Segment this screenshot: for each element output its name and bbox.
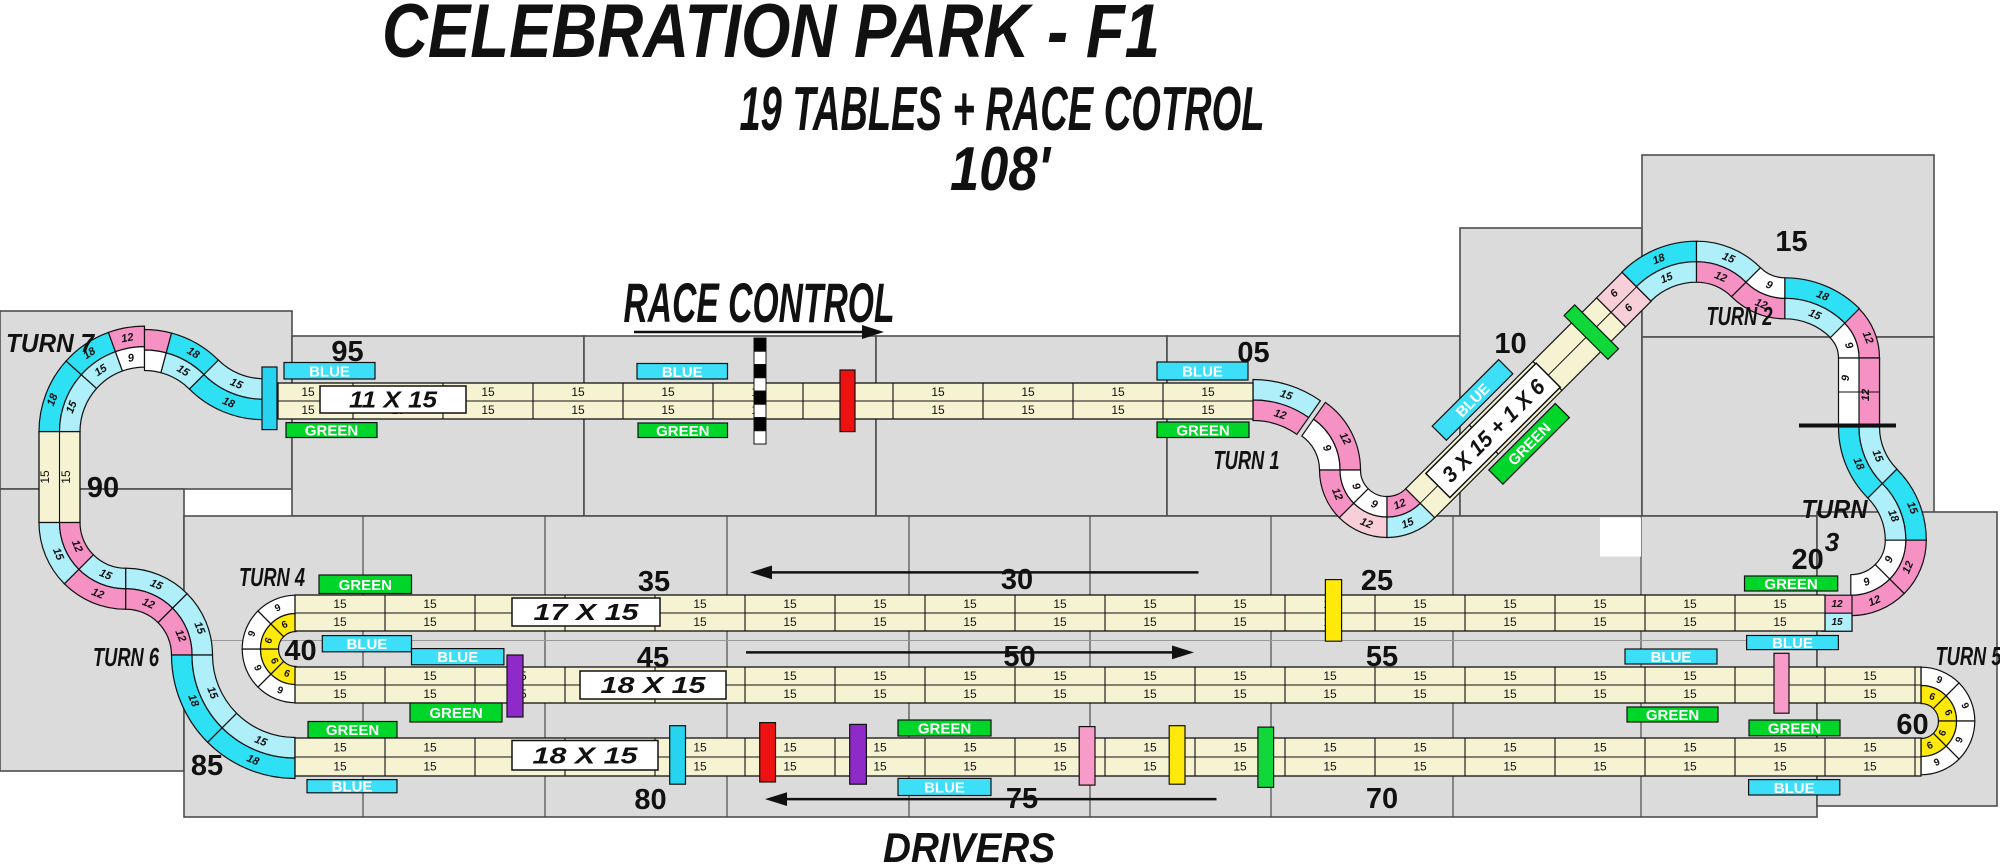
svg-text:15: 15 xyxy=(1503,741,1517,755)
svg-text:12: 12 xyxy=(1860,389,1872,401)
svg-text:15: 15 xyxy=(1413,597,1427,611)
svg-text:15: 15 xyxy=(1831,617,1843,628)
svg-text:15: 15 xyxy=(301,403,315,417)
svg-text:50: 50 xyxy=(1003,641,1035,673)
svg-text:15: 15 xyxy=(1683,615,1697,629)
svg-text:15: 15 xyxy=(693,760,707,774)
svg-text:25: 25 xyxy=(1361,565,1393,597)
svg-text:10: 10 xyxy=(1494,328,1526,360)
svg-text:TURN 6: TURN 6 xyxy=(93,642,159,672)
svg-text:BLUE: BLUE xyxy=(924,779,965,796)
svg-text:15: 15 xyxy=(423,597,437,611)
svg-text:TURN 1: TURN 1 xyxy=(1214,445,1280,475)
svg-text:90: 90 xyxy=(87,472,119,504)
svg-text:15: 15 xyxy=(1503,669,1517,683)
svg-text:15: 15 xyxy=(963,615,977,629)
svg-text:20: 20 xyxy=(1791,544,1823,576)
svg-text:15: 15 xyxy=(1863,760,1877,774)
svg-text:GREEN: GREEN xyxy=(305,423,358,440)
svg-text:45: 45 xyxy=(637,642,669,674)
svg-text:05: 05 xyxy=(1237,337,1269,369)
svg-text:15: 15 xyxy=(1053,615,1067,629)
svg-text:15: 15 xyxy=(571,403,585,417)
svg-text:TURN 5: TURN 5 xyxy=(1936,641,2000,671)
svg-text:15: 15 xyxy=(1143,760,1157,774)
svg-text:15: 15 xyxy=(333,741,347,755)
svg-text:11 X 15: 11 X 15 xyxy=(349,387,438,413)
svg-text:95: 95 xyxy=(331,336,363,368)
svg-text:15: 15 xyxy=(423,741,437,755)
svg-text:15: 15 xyxy=(333,760,347,774)
svg-text:TURN 2: TURN 2 xyxy=(1707,301,1773,331)
svg-text:15: 15 xyxy=(333,687,347,701)
svg-text:BLUE: BLUE xyxy=(346,636,387,653)
svg-text:15: 15 xyxy=(963,741,977,755)
svg-text:15: 15 xyxy=(481,385,495,399)
svg-text:15: 15 xyxy=(1143,597,1157,611)
svg-text:15: 15 xyxy=(1413,669,1427,683)
svg-text:15: 15 xyxy=(301,385,315,399)
svg-text:15: 15 xyxy=(1233,687,1247,701)
svg-text:15: 15 xyxy=(873,669,887,683)
svg-text:15: 15 xyxy=(963,597,977,611)
svg-text:GREEN: GREEN xyxy=(1764,576,1817,593)
svg-text:15: 15 xyxy=(1053,741,1067,755)
svg-text:15: 15 xyxy=(693,615,707,629)
svg-text:15: 15 xyxy=(963,760,977,774)
svg-text:15: 15 xyxy=(1111,385,1125,399)
svg-text:DRIVERS: DRIVERS xyxy=(883,824,1055,864)
svg-text:15: 15 xyxy=(1143,669,1157,683)
svg-text:BLUE: BLUE xyxy=(437,649,478,666)
svg-text:15: 15 xyxy=(481,403,495,417)
svg-text:TURN 4: TURN 4 xyxy=(239,562,305,592)
svg-text:15: 15 xyxy=(1775,226,1807,258)
svg-text:15: 15 xyxy=(571,385,585,399)
svg-text:15: 15 xyxy=(1323,760,1337,774)
svg-text:15: 15 xyxy=(1323,669,1337,683)
svg-text:15: 15 xyxy=(1233,615,1247,629)
svg-text:30: 30 xyxy=(1001,564,1033,596)
svg-text:GREEN: GREEN xyxy=(1646,707,1699,724)
svg-text:15: 15 xyxy=(1021,403,1035,417)
svg-text:15: 15 xyxy=(1773,741,1787,755)
svg-text:GREEN: GREEN xyxy=(918,721,971,738)
svg-text:15: 15 xyxy=(963,687,977,701)
svg-text:15: 15 xyxy=(693,597,707,611)
svg-text:15: 15 xyxy=(1053,760,1067,774)
svg-text:15: 15 xyxy=(333,597,347,611)
svg-text:15: 15 xyxy=(1323,687,1337,701)
svg-text:15: 15 xyxy=(873,597,887,611)
svg-text:TURN 7: TURN 7 xyxy=(6,328,95,358)
svg-text:BLUE: BLUE xyxy=(1182,364,1223,381)
svg-text:18 X 15: 18 X 15 xyxy=(533,742,640,768)
svg-text:15: 15 xyxy=(1413,760,1427,774)
svg-text:15: 15 xyxy=(1021,385,1035,399)
svg-text:40: 40 xyxy=(284,635,316,667)
svg-text:BLUE: BLUE xyxy=(1774,780,1815,797)
svg-text:GREEN: GREEN xyxy=(429,705,482,722)
svg-text:15: 15 xyxy=(1201,385,1215,399)
svg-text:15: 15 xyxy=(1593,615,1607,629)
svg-text:15: 15 xyxy=(1053,597,1067,611)
svg-text:15: 15 xyxy=(1683,669,1697,683)
svg-text:15: 15 xyxy=(1773,615,1787,629)
svg-text:85: 85 xyxy=(191,750,223,782)
svg-text:15: 15 xyxy=(333,669,347,683)
svg-text:55: 55 xyxy=(1366,641,1398,673)
svg-text:15: 15 xyxy=(1593,687,1607,701)
svg-text:17 X 15: 17 X 15 xyxy=(534,599,641,625)
svg-text:15: 15 xyxy=(1593,741,1607,755)
svg-text:15: 15 xyxy=(1233,669,1247,683)
svg-text:15: 15 xyxy=(1143,615,1157,629)
svg-text:15: 15 xyxy=(1773,760,1787,774)
svg-text:15: 15 xyxy=(423,760,437,774)
svg-text:15: 15 xyxy=(1773,597,1787,611)
svg-text:15: 15 xyxy=(1683,741,1697,755)
svg-text:15: 15 xyxy=(1593,760,1607,774)
svg-text:15: 15 xyxy=(1503,615,1517,629)
svg-text:BLUE: BLUE xyxy=(332,779,373,796)
svg-text:3: 3 xyxy=(1825,527,1840,557)
svg-text:15: 15 xyxy=(1233,597,1247,611)
svg-text:12: 12 xyxy=(1831,599,1843,610)
svg-text:15: 15 xyxy=(873,687,887,701)
svg-text:15: 15 xyxy=(783,741,797,755)
svg-text:12: 12 xyxy=(120,331,134,345)
svg-text:15: 15 xyxy=(1503,687,1517,701)
svg-text:BLUE: BLUE xyxy=(1651,649,1692,666)
svg-text:15: 15 xyxy=(1201,403,1215,417)
svg-text:15: 15 xyxy=(1593,597,1607,611)
svg-text:15: 15 xyxy=(333,615,347,629)
svg-text:18 X 15: 18 X 15 xyxy=(601,672,708,698)
svg-text:CELEBRATION PARK - F1: CELEBRATION PARK - F1 xyxy=(382,0,1160,74)
svg-text:15: 15 xyxy=(1863,669,1877,683)
svg-text:15: 15 xyxy=(873,741,887,755)
svg-text:15: 15 xyxy=(423,615,437,629)
svg-text:GREEN: GREEN xyxy=(326,722,379,739)
svg-text:19 TABLES + RACE COTROL: 19 TABLES + RACE COTROL xyxy=(740,75,1265,144)
svg-text:108': 108' xyxy=(950,135,1052,204)
svg-text:BLUE: BLUE xyxy=(662,364,703,381)
svg-text:15: 15 xyxy=(423,687,437,701)
svg-text:15: 15 xyxy=(59,470,73,484)
svg-text:15: 15 xyxy=(931,403,945,417)
svg-text:15: 15 xyxy=(1863,687,1877,701)
svg-text:70: 70 xyxy=(1366,783,1398,815)
svg-text:15: 15 xyxy=(873,615,887,629)
svg-text:15: 15 xyxy=(38,470,52,484)
svg-text:15: 15 xyxy=(1413,741,1427,755)
svg-text:GREEN: GREEN xyxy=(656,423,709,440)
svg-text:15: 15 xyxy=(661,403,675,417)
svg-text:15: 15 xyxy=(1111,403,1125,417)
svg-text:GREEN: GREEN xyxy=(339,577,392,594)
svg-text:15: 15 xyxy=(1503,597,1517,611)
svg-text:15: 15 xyxy=(783,615,797,629)
svg-text:9: 9 xyxy=(1840,374,1852,381)
svg-text:15: 15 xyxy=(1413,615,1427,629)
svg-text:15: 15 xyxy=(1053,669,1067,683)
svg-text:60: 60 xyxy=(1896,709,1928,741)
svg-text:15: 15 xyxy=(1593,669,1607,683)
svg-text:BLUE: BLUE xyxy=(1772,635,1813,652)
svg-text:15: 15 xyxy=(1683,760,1697,774)
svg-text:15: 15 xyxy=(963,669,977,683)
svg-text:15: 15 xyxy=(1233,760,1247,774)
svg-text:15: 15 xyxy=(931,385,945,399)
svg-text:35: 35 xyxy=(638,566,670,598)
svg-text:15: 15 xyxy=(783,597,797,611)
svg-text:RACE CONTROL: RACE CONTROL xyxy=(624,271,895,334)
svg-text:15: 15 xyxy=(1233,741,1247,755)
svg-text:GREEN: GREEN xyxy=(1176,422,1229,439)
svg-text:15: 15 xyxy=(783,760,797,774)
svg-text:15: 15 xyxy=(1143,687,1157,701)
svg-text:15: 15 xyxy=(783,669,797,683)
svg-text:15: 15 xyxy=(1323,741,1337,755)
svg-text:15: 15 xyxy=(423,669,437,683)
svg-text:15: 15 xyxy=(1503,760,1517,774)
svg-text:15: 15 xyxy=(1683,687,1697,701)
svg-text:15: 15 xyxy=(1413,687,1427,701)
svg-text:TURN: TURN xyxy=(1802,494,1869,524)
svg-text:15: 15 xyxy=(1683,597,1697,611)
svg-text:GREEN: GREEN xyxy=(1768,720,1821,737)
svg-text:80: 80 xyxy=(634,784,666,816)
svg-text:15: 15 xyxy=(1143,741,1157,755)
svg-text:15: 15 xyxy=(1863,741,1877,755)
svg-text:15: 15 xyxy=(693,741,707,755)
svg-text:15: 15 xyxy=(661,385,675,399)
svg-text:15: 15 xyxy=(783,687,797,701)
svg-text:15: 15 xyxy=(1053,687,1067,701)
svg-text:15: 15 xyxy=(873,760,887,774)
